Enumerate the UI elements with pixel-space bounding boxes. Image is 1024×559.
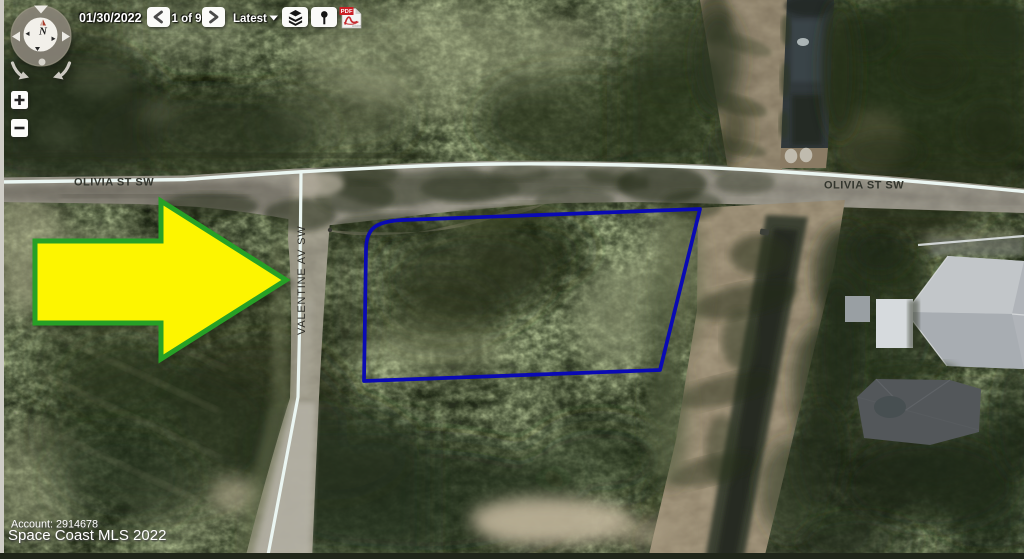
svg-text:OLIVIA ST SW: OLIVIA ST SW bbox=[824, 180, 904, 192]
svg-text:01/30/2022: 01/30/2022 bbox=[79, 11, 142, 25]
svg-text:OLIVIA ST SW: OLIVIA ST SW bbox=[74, 177, 154, 189]
svg-text:Adobe: Adobe bbox=[352, 24, 361, 28]
svg-text:PDF: PDF bbox=[341, 9, 353, 15]
svg-text:Space Coast MLS 2022: Space Coast MLS 2022 bbox=[8, 527, 166, 544]
svg-text:N: N bbox=[38, 26, 48, 38]
svg-text:1 of 9: 1 of 9 bbox=[172, 13, 202, 25]
svg-text:VALENTINE AV SW: VALENTINE AV SW bbox=[296, 226, 308, 335]
svg-text:Latest: Latest bbox=[233, 13, 267, 25]
